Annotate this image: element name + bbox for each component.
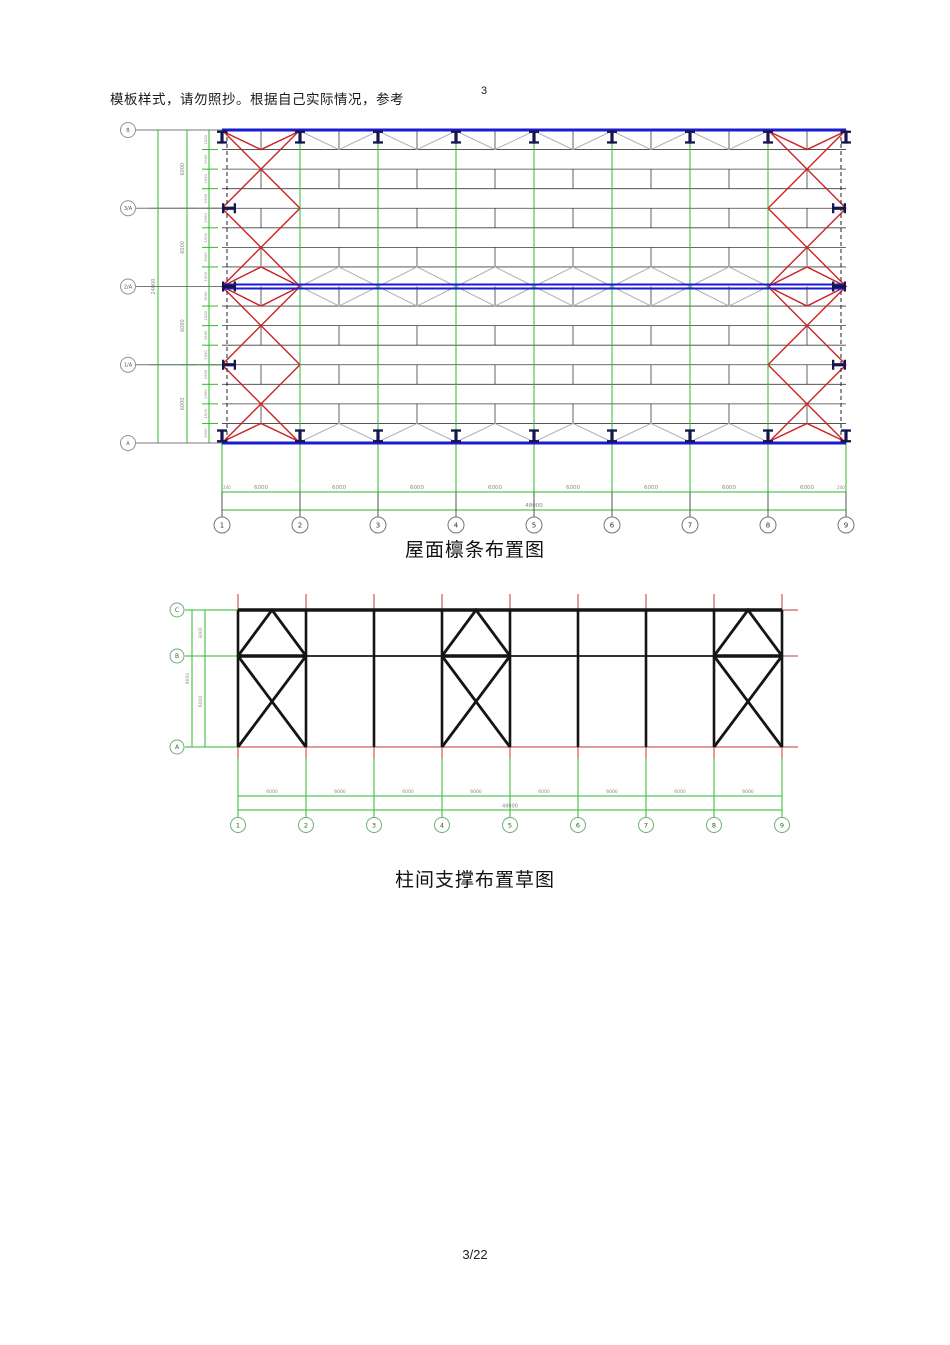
page-number-footer: 3/22 [0, 1247, 950, 1262]
col-axis-bubbles: 123456789 [231, 818, 790, 833]
col-axis-label: 2 [304, 822, 308, 830]
col-axis-label: 2 [298, 522, 302, 530]
purlin-spacing-label: 1500 [203, 291, 208, 301]
col-axis-label: 7 [644, 822, 648, 830]
bay-dim-label: 6000 [566, 485, 580, 491]
purlin-spacing-label: 1500 [203, 154, 208, 164]
row-axis-label: C [175, 607, 179, 614]
purlin-spacing-label: 1500 [203, 252, 208, 262]
bay-dim-label: 6000 [470, 789, 482, 795]
red-stub-lines [238, 747, 782, 758]
left-span-dim-label: 6000 [180, 163, 186, 176]
left-total-dim-label: 9000 [185, 673, 191, 685]
bay-dim-label: 6000 [800, 485, 814, 491]
left-span-dim-label: 6000 [198, 696, 204, 708]
green-grid-lines [150, 130, 846, 516]
bay-dim-label: 6000 [334, 789, 346, 795]
bay-dim-label: 6000 [644, 485, 658, 491]
drawings-canvas: B3/A2/A1/AA12345678960006000600060006000… [0, 0, 950, 1345]
purlin-spacing-label: 1500 [203, 232, 208, 242]
row-axis-bubbles: B3/A2/A1/AA [121, 123, 223, 451]
purlin-spacing-label: 1500 [203, 408, 208, 418]
col-axis-label: 4 [440, 822, 444, 830]
row-axis-label: A [126, 441, 130, 447]
row-axis-label: B [175, 653, 179, 660]
col-axis-label: 5 [532, 522, 536, 530]
col-axis-label: 9 [844, 522, 848, 530]
left-span-dim-label: 6000 [180, 241, 186, 254]
roof-dimension-labels: 6000600060006000600060006000600024024048… [151, 134, 845, 509]
col-axis-label: 9 [780, 822, 784, 830]
total-dim-label: 48000 [502, 804, 518, 810]
col-axis-label: 1 [220, 522, 224, 530]
purlin-spacing-label: 1500 [203, 310, 208, 320]
col-axis-label: 6 [576, 822, 580, 830]
col-axis-label: 6 [610, 522, 615, 530]
green-dim-lines [185, 610, 782, 818]
row-axis-label: 2/A [124, 284, 133, 290]
roof-purlin-plan-drawing: B3/A2/A1/AA12345678960006000600060006000… [121, 123, 855, 534]
column-brace [442, 610, 510, 747]
col-axis-label: 8 [766, 522, 770, 530]
bay-dim-label: 6000 [488, 485, 502, 491]
col-axis-label: 5 [508, 822, 512, 830]
bay-dim-label: 6000 [410, 485, 424, 491]
column-bracing-drawing: CBA1234567896000600060006000600060006000… [170, 594, 798, 833]
roof-plan-caption: 屋面檩条布置图 [0, 535, 950, 562]
purlin-spacing-label: 1500 [203, 213, 208, 223]
purlin-spacing-label: 1500 [203, 389, 208, 399]
col-axis-bubbles: 123456789 [214, 492, 854, 533]
col-axis-label: 1 [236, 822, 240, 830]
bay-dim-label: 6000 [254, 485, 268, 491]
col-axis-label: 3 [372, 822, 376, 830]
bay-dim-label: 6000 [722, 485, 736, 491]
column-brace [238, 610, 306, 747]
end-dim-label: 240 [223, 485, 231, 490]
column-brace [714, 610, 782, 747]
end-dim-label: 240 [837, 485, 845, 490]
row-axis-label: 1/A [124, 363, 133, 369]
bay-dim-label: 6000 [742, 789, 754, 795]
left-span-dim-label: 6000 [180, 398, 186, 411]
left-span-dim-label: 6000 [180, 319, 186, 332]
bay-dim-label: 6000 [402, 789, 414, 795]
row-axis-bubbles: CBA [170, 603, 184, 754]
col-axis-label: 7 [688, 522, 692, 530]
bay-dim-label: 6000 [606, 789, 618, 795]
col-axis-label: 3 [376, 522, 380, 530]
bay-dim-label: 6000 [266, 789, 278, 795]
col-axis-label: 8 [712, 822, 716, 830]
total-dim-label: 48000 [525, 503, 543, 509]
purlin-spacing-label: 1500 [203, 330, 208, 340]
frame-members [238, 610, 782, 747]
purlin-spacing-label: 1500 [203, 428, 208, 438]
purlin-spacing-label: 1500 [203, 173, 208, 183]
left-total-dim-label: 24000 [151, 279, 157, 295]
col-axis-label: 4 [454, 522, 459, 530]
left-span-dim-label: 3000 [198, 627, 204, 639]
purlin-spacing-label: 1500 [203, 193, 208, 203]
bay-dim-label: 6000 [674, 789, 686, 795]
bay-dim-label: 6000 [332, 485, 346, 491]
purlin-spacing-label: 1500 [203, 350, 208, 360]
bracing-sketch-caption: 柱间支撑布置草图 [0, 865, 950, 892]
row-axis-label: B [126, 128, 130, 134]
purlin-spacing-label: 1500 [203, 369, 208, 379]
purlin-spacing-label: 1500 [203, 271, 208, 281]
purlin-spacing-label: 1500 [203, 134, 208, 144]
document-page: 模板样式，请勿照抄。根据自己实际情况，参考 3 B3/A2/A1/AA12345… [0, 0, 950, 1345]
row-axis-label: 3/A [124, 206, 133, 212]
bay-dim-label: 6000 [538, 789, 550, 795]
